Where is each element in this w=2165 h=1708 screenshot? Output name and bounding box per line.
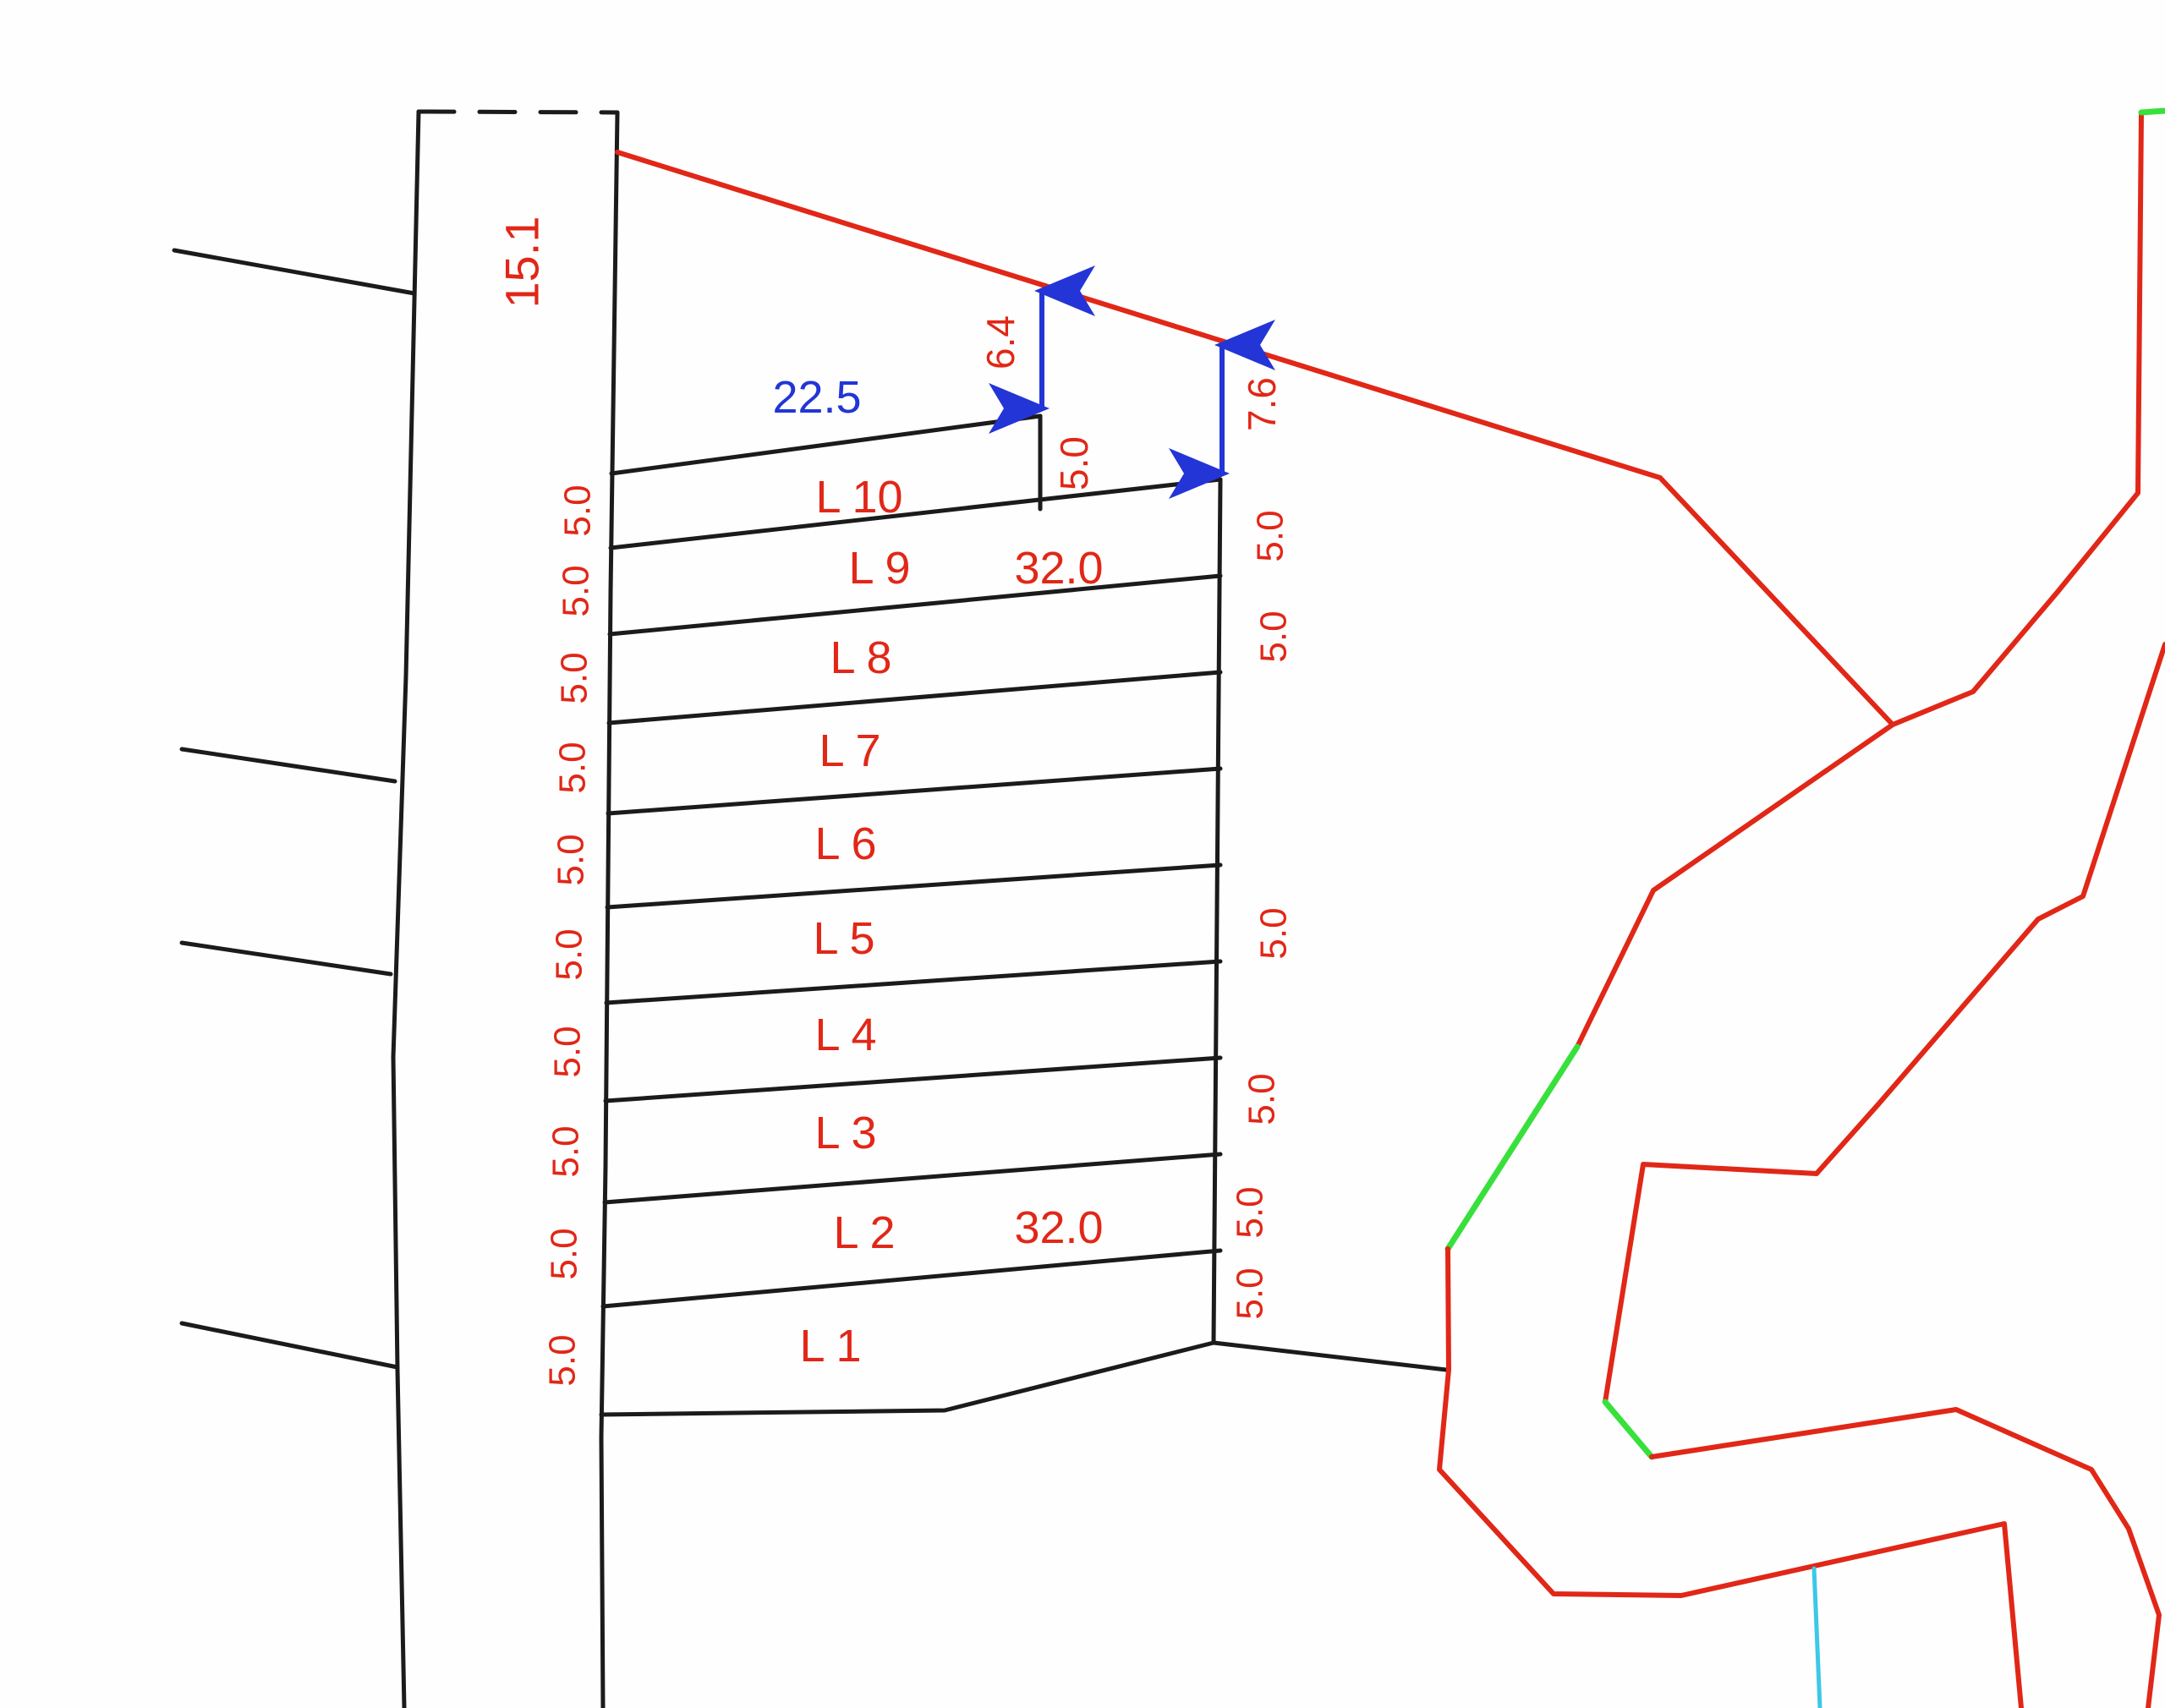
lot-label-l10: L 10 <box>815 472 902 523</box>
west-branch-line-4 <box>182 1323 397 1367</box>
red-boundary-branch-up <box>1893 112 2141 725</box>
lot-label-l9: L 9 <box>848 543 910 594</box>
lot-label-l3: L 3 <box>814 1108 876 1158</box>
dim-gap-l9: 7.6 <box>1240 377 1284 431</box>
dim-right-width-l9: 5.0 <box>1250 510 1291 561</box>
lot-line-l2-l1 <box>603 1251 1220 1306</box>
green-segment-inner <box>1605 1402 1652 1457</box>
green-segment-top-right <box>2141 111 2165 112</box>
red-boundary-branch-down <box>1577 725 1893 1047</box>
survey-plan-canvas: 15.1 6.4 5.0 7.6 5.0 5.0 5.0 5.0 5.0 5.0… <box>0 0 2165 1708</box>
lot-label-l6: L 6 <box>814 818 876 869</box>
west-branch-line-3 <box>182 943 391 974</box>
lot-label-l2: L 2 <box>833 1207 895 1258</box>
dim-depth-upper: 32.0 <box>1014 543 1103 594</box>
dim-left-width-l10: 5.0 <box>557 484 599 536</box>
dim-l10-top-width: 22.5 <box>772 372 861 423</box>
dim-right-width-l6: 5.0 <box>1253 907 1295 959</box>
dim-left-width-l5: 5.0 <box>549 928 590 980</box>
lot-line-l4-l3 <box>606 1058 1220 1101</box>
cyan-line <box>1814 1568 1820 1708</box>
dim-depth-lower: 32.0 <box>1014 1202 1103 1253</box>
dim-left-width-l1: 5.0 <box>542 1334 584 1386</box>
dim-gap-l10: 6.4 <box>978 315 1022 370</box>
road-left-edge <box>393 112 419 1708</box>
dim-left-width-l6: 5.0 <box>551 834 592 885</box>
lot-line-l9-l8 <box>610 576 1220 634</box>
road-top-dashed-line <box>419 112 617 112</box>
dim-l10-right-side: 5.0 <box>1052 436 1096 490</box>
dim-left-width-l7: 5.0 <box>552 742 594 793</box>
dim-right-width-l4: 5.0 <box>1241 1073 1283 1125</box>
dim-left-width-l8: 5.0 <box>554 652 595 703</box>
red-boundary-inner-upper <box>1605 644 2165 1402</box>
road-right-edge <box>601 112 617 1708</box>
lot-label-l4: L 4 <box>814 1010 876 1060</box>
lot-block-east-edge <box>1214 479 1220 1343</box>
lot-label-l7: L 7 <box>819 725 880 776</box>
lot-line-l8-l7 <box>609 672 1220 723</box>
lot-label-l1: L 1 <box>799 1321 861 1371</box>
survey-plan-drawing: 15.1 6.4 5.0 7.6 5.0 5.0 5.0 5.0 5.0 5.0… <box>0 0 2165 1708</box>
lot-line-l10-top <box>611 416 1040 474</box>
west-branch-line-2 <box>182 749 395 781</box>
dim-left-width-l3: 5.0 <box>545 1125 587 1177</box>
dim-left-width-l9: 5.0 <box>556 565 597 616</box>
green-segment-west <box>1448 1047 1577 1249</box>
lot-block-south-boundary <box>601 1343 1446 1415</box>
red-boundary-south <box>1439 1249 2021 1708</box>
lot-line-l6-l5 <box>607 865 1220 907</box>
lot-line-l10-l9 <box>611 479 1220 548</box>
lot-line-l5-l4 <box>606 961 1220 1003</box>
dim-left-width-l2: 5.0 <box>544 1228 585 1279</box>
west-branch-line-1 <box>174 250 414 293</box>
dim-right-width-l8: 5.0 <box>1253 610 1295 662</box>
dim-road-frontage: 15.1 <box>496 216 549 309</box>
red-boundary-inner-lower <box>1652 1410 2159 1708</box>
dim-right-width-l3: 5.0 <box>1230 1186 1271 1238</box>
dim-left-width-l4: 5.0 <box>547 1026 589 1077</box>
dim-right-width-l2: 5.0 <box>1230 1267 1271 1319</box>
lot-line-l3-l2 <box>605 1154 1220 1202</box>
lot-label-l5: L 5 <box>813 913 874 964</box>
lot-line-l7-l6 <box>608 769 1220 813</box>
lot-label-l8: L 8 <box>830 632 891 683</box>
